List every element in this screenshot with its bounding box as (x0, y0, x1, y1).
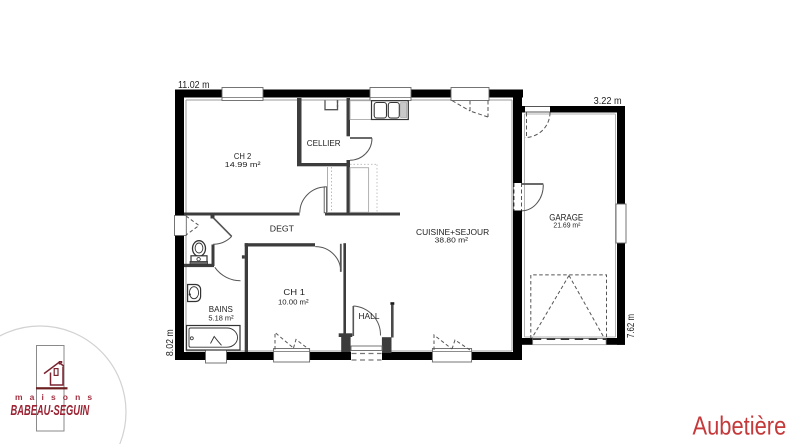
svg-text:DEGT: DEGT (270, 224, 295, 234)
svg-text:21.69 m²: 21.69 m² (553, 220, 581, 229)
svg-text:3.22 m: 3.22 m (594, 96, 622, 107)
svg-text:HALL: HALL (359, 311, 380, 321)
svg-text:CH 1: CH 1 (283, 287, 305, 297)
svg-text:8.02 m: 8.02 m (165, 329, 176, 356)
svg-text:maisons: maisons (15, 392, 99, 402)
svg-text:5.18 m²: 5.18 m² (208, 314, 234, 323)
svg-text:14.99 m²: 14.99 m² (225, 160, 261, 169)
svg-text:38.80 m²: 38.80 m² (435, 236, 469, 245)
svg-text:CELLIER: CELLIER (307, 138, 341, 148)
svg-text:BAINS: BAINS (209, 304, 233, 314)
svg-text:7.62 m: 7.62 m (626, 314, 637, 338)
svg-text:Aubetière: Aubetière (693, 411, 787, 441)
svg-text:11.02 m: 11.02 m (178, 80, 210, 91)
svg-text:10.00 m²: 10.00 m² (278, 297, 309, 306)
svg-text:BABEAU-SEGUIN: BABEAU-SEGUIN (11, 402, 91, 419)
